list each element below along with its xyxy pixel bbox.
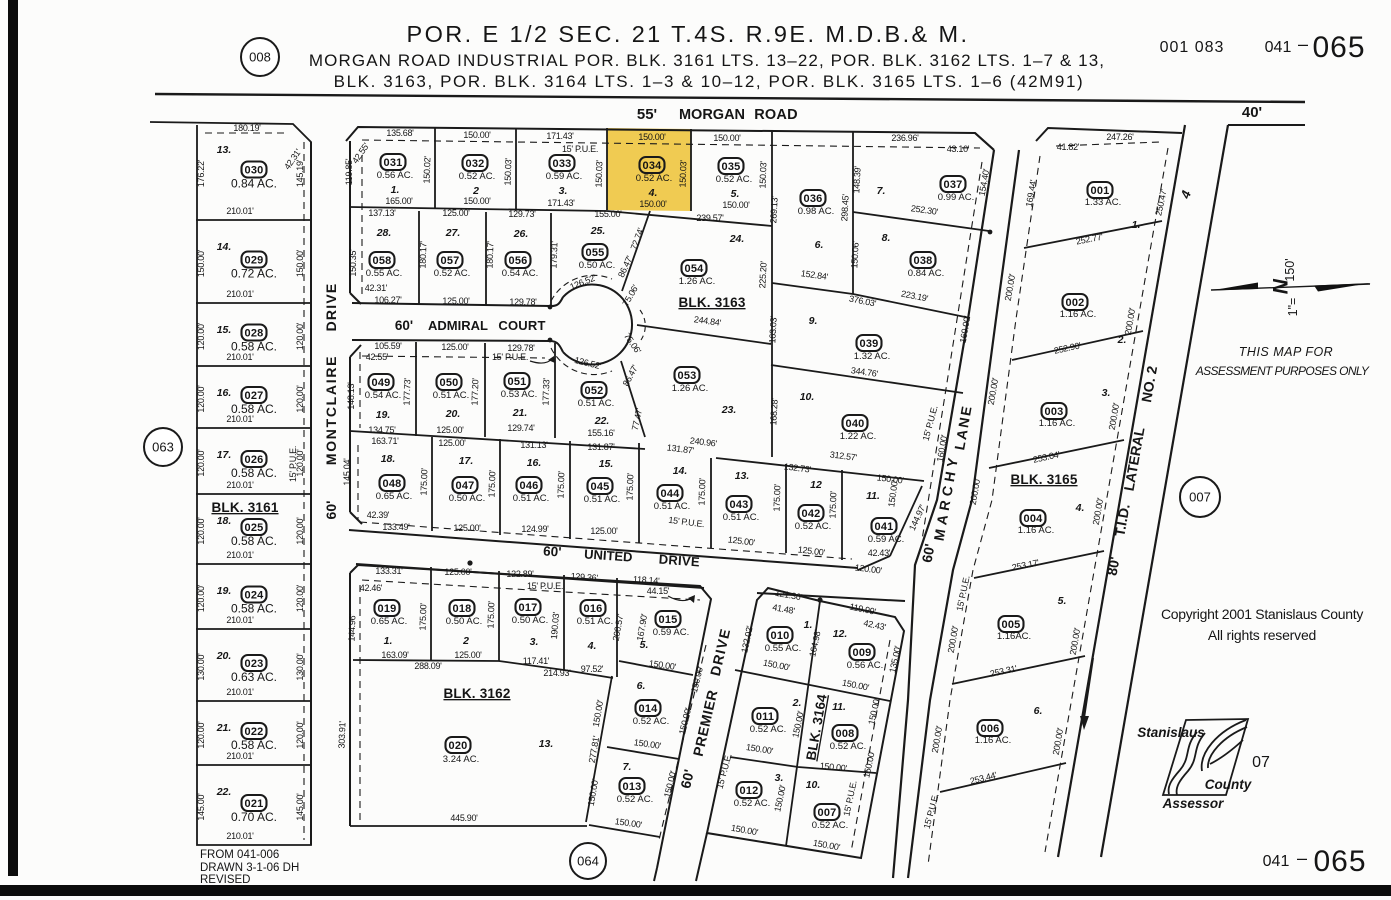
svg-text:145.00': 145.00' bbox=[295, 793, 305, 821]
svg-text:DRIVE: DRIVE bbox=[323, 283, 339, 332]
svg-text:27.: 27. bbox=[445, 227, 461, 239]
svg-text:045: 045 bbox=[591, 481, 610, 493]
svg-text:163.03': 163.03' bbox=[767, 315, 778, 343]
svg-text:3.: 3. bbox=[775, 772, 784, 784]
svg-text:7.: 7. bbox=[623, 761, 632, 773]
svg-text:COURT: COURT bbox=[498, 318, 545, 333]
svg-text:177.73': 177.73' bbox=[402, 378, 413, 406]
svg-text:REVISED: REVISED bbox=[200, 874, 251, 886]
svg-text:13.: 13. bbox=[539, 738, 554, 750]
svg-text:0.63 AC.: 0.63 AC. bbox=[231, 670, 277, 684]
svg-text:053: 053 bbox=[678, 370, 697, 382]
svg-text:25.: 25. bbox=[590, 225, 606, 237]
svg-text:0.55 AC.: 0.55 AC. bbox=[765, 643, 801, 654]
svg-text:048: 048 bbox=[383, 478, 402, 490]
svg-text:120.00': 120.00' bbox=[295, 322, 305, 350]
svg-text:BLK. 3163, POR. BLK. 3164 LTS.: BLK. 3163, POR. BLK. 3164 LTS. 1–3 & 10–… bbox=[334, 72, 1085, 91]
svg-text:14.: 14. bbox=[673, 465, 688, 477]
svg-text:038: 038 bbox=[914, 255, 933, 267]
svg-text:MORGAN ROAD INDUSTRIAL POR. BL: MORGAN ROAD INDUSTRIAL POR. BLK. 3161 LT… bbox=[309, 51, 1105, 70]
svg-text:0.52 AC.: 0.52 AC. bbox=[812, 820, 848, 831]
svg-text:0.51 AC.: 0.51 AC. bbox=[433, 390, 469, 401]
svg-text:0.98 AC.: 0.98 AC. bbox=[798, 206, 834, 217]
svg-text:MORGAN: MORGAN bbox=[679, 107, 745, 123]
svg-text:41.82': 41.82' bbox=[1057, 142, 1080, 152]
svg-text:0.56 AC.: 0.56 AC. bbox=[377, 170, 413, 181]
svg-text:176.22': 176.22' bbox=[196, 159, 206, 187]
svg-text:057: 057 bbox=[441, 255, 460, 267]
svg-text:0.52 AC.: 0.52 AC. bbox=[636, 173, 672, 184]
svg-text:118.14': 118.14' bbox=[633, 574, 661, 586]
svg-text:180.17': 180.17' bbox=[485, 241, 496, 269]
svg-text:016: 016 bbox=[584, 603, 603, 615]
svg-text:125.00': 125.00' bbox=[454, 650, 482, 660]
svg-text:009: 009 bbox=[853, 647, 872, 659]
svg-text:2.: 2. bbox=[792, 697, 802, 709]
svg-text:0.52 AC.: 0.52 AC. bbox=[734, 798, 770, 809]
svg-text:148.39': 148.39' bbox=[851, 165, 862, 193]
svg-text:20.: 20. bbox=[216, 650, 232, 662]
svg-text:0.72 AC.: 0.72 AC. bbox=[231, 267, 277, 281]
svg-text:FROM 041-006: FROM 041-006 bbox=[200, 849, 279, 861]
svg-text:029: 029 bbox=[245, 255, 264, 267]
svg-text:175.00': 175.00' bbox=[419, 468, 430, 496]
svg-text:42.31': 42.31' bbox=[365, 283, 388, 293]
svg-text:0.65 AC.: 0.65 AC. bbox=[371, 616, 407, 627]
svg-text:0.65 AC.: 0.65 AC. bbox=[376, 491, 412, 502]
svg-text:1.16 AC.: 1.16 AC. bbox=[1018, 525, 1054, 536]
svg-text:041: 041 bbox=[875, 521, 894, 533]
svg-text:3.: 3. bbox=[530, 636, 539, 648]
svg-text:039: 039 bbox=[860, 338, 879, 350]
svg-text:031: 031 bbox=[384, 157, 403, 169]
svg-text:137.13': 137.13' bbox=[368, 208, 396, 218]
svg-text:150.03': 150.03' bbox=[678, 160, 689, 188]
svg-text:150.00': 150.00' bbox=[722, 200, 750, 210]
svg-text:13.: 13. bbox=[217, 144, 232, 156]
svg-text:44.15': 44.15' bbox=[647, 586, 670, 596]
svg-text:6.: 6. bbox=[1034, 705, 1043, 717]
svg-text:0.51 AC.: 0.51 AC. bbox=[584, 494, 620, 505]
svg-text:010: 010 bbox=[771, 630, 790, 642]
svg-text:7.: 7. bbox=[877, 185, 886, 197]
svg-text:445.90': 445.90' bbox=[450, 813, 478, 823]
svg-text:42.46': 42.46' bbox=[360, 583, 383, 593]
svg-text:303.91': 303.91' bbox=[337, 721, 348, 749]
svg-text:0.50 AC.: 0.50 AC. bbox=[446, 616, 482, 627]
svg-text:120.00': 120.00' bbox=[196, 322, 206, 350]
svg-text:DRIVE: DRIVE bbox=[658, 552, 700, 570]
svg-text:105.59': 105.59' bbox=[374, 341, 402, 351]
svg-text:0.51 AC.: 0.51 AC. bbox=[513, 493, 549, 504]
svg-text:11.: 11. bbox=[866, 490, 880, 502]
svg-text:23.: 23. bbox=[721, 404, 737, 416]
svg-text:050: 050 bbox=[440, 377, 459, 389]
svg-text:Copyright 2001 Stanislaus Coun: Copyright 2001 Stanislaus County bbox=[1161, 606, 1363, 622]
svg-text:014: 014 bbox=[639, 703, 659, 715]
svg-text:239.57': 239.57' bbox=[696, 213, 724, 223]
svg-text:9.: 9. bbox=[809, 315, 818, 327]
svg-text:0.50 AC.: 0.50 AC. bbox=[579, 260, 615, 271]
svg-text:002: 002 bbox=[1066, 297, 1085, 309]
svg-text:168.28': 168.28' bbox=[768, 397, 779, 425]
svg-text:60': 60' bbox=[919, 542, 938, 563]
svg-text:225.20': 225.20' bbox=[757, 260, 768, 288]
svg-text:043: 043 bbox=[730, 499, 749, 511]
svg-text:035: 035 bbox=[722, 161, 741, 173]
svg-text:125.00': 125.00' bbox=[444, 567, 472, 577]
svg-text:236.96': 236.96' bbox=[891, 133, 919, 143]
svg-text:15.: 15. bbox=[599, 458, 614, 470]
svg-text:026: 026 bbox=[245, 454, 264, 466]
svg-text:0.58 AC.: 0.58 AC. bbox=[231, 602, 277, 616]
svg-text:20.: 20. bbox=[445, 408, 461, 420]
svg-text:80': 80' bbox=[1104, 555, 1123, 576]
svg-text:16.: 16. bbox=[217, 387, 232, 399]
svg-text:18.: 18. bbox=[217, 515, 232, 527]
svg-text:DRAWN 3-1-06 DH: DRAWN 3-1-06 DH bbox=[200, 862, 299, 874]
svg-text:17.: 17. bbox=[459, 455, 474, 467]
svg-text:150.03': 150.03' bbox=[758, 161, 769, 189]
svg-text:042: 042 bbox=[802, 508, 821, 520]
svg-text:054: 054 bbox=[685, 263, 705, 275]
svg-text:6.: 6. bbox=[815, 239, 824, 251]
svg-text:1.22 AC.: 1.22 AC. bbox=[840, 431, 876, 442]
svg-text:0.52 AC.: 0.52 AC. bbox=[633, 716, 669, 727]
svg-text:3.: 3. bbox=[559, 185, 568, 197]
svg-text:041: 041 bbox=[1263, 853, 1290, 870]
svg-text:056: 056 bbox=[509, 255, 528, 267]
svg-text:065: 065 bbox=[1312, 31, 1365, 64]
svg-text:019: 019 bbox=[378, 603, 397, 615]
svg-text:150.03': 150.03' bbox=[503, 158, 514, 186]
svg-text:005: 005 bbox=[1002, 619, 1021, 631]
svg-text:BLK. 3161: BLK. 3161 bbox=[211, 500, 278, 515]
svg-text:15' P.U.E.: 15' P.U.E. bbox=[527, 581, 563, 591]
svg-text:0.52 AC.: 0.52 AC. bbox=[459, 171, 495, 182]
svg-text:012: 012 bbox=[740, 785, 759, 797]
svg-text:42.43': 42.43' bbox=[868, 548, 891, 558]
svg-text:5.: 5. bbox=[1058, 595, 1067, 607]
svg-text:12.: 12. bbox=[833, 628, 848, 640]
svg-text:125.00': 125.00' bbox=[453, 523, 481, 533]
svg-text:210.01': 210.01' bbox=[226, 289, 254, 299]
svg-text:175.00': 175.00' bbox=[486, 601, 497, 629]
svg-text:150.35': 150.35' bbox=[348, 249, 358, 277]
svg-text:1.26 AC.: 1.26 AC. bbox=[672, 383, 708, 394]
svg-text:175.00': 175.00' bbox=[418, 603, 429, 631]
svg-text:Assessor: Assessor bbox=[1162, 796, 1225, 811]
svg-text:15' P.U.E.: 15' P.U.E. bbox=[288, 446, 298, 482]
svg-text:148.13': 148.13' bbox=[346, 382, 356, 410]
svg-text:145.00': 145.00' bbox=[196, 793, 206, 821]
svg-text:210.01': 210.01' bbox=[226, 414, 254, 424]
svg-text:8.: 8. bbox=[882, 232, 891, 244]
svg-text:058: 058 bbox=[373, 255, 392, 267]
svg-text:1.26 AC.: 1.26 AC. bbox=[679, 276, 715, 287]
svg-text:–: – bbox=[1298, 34, 1308, 54]
svg-text:150.00': 150.00' bbox=[196, 249, 206, 277]
svg-text:210.01': 210.01' bbox=[226, 751, 254, 761]
svg-text:179.31': 179.31' bbox=[549, 241, 560, 269]
svg-text:55': 55' bbox=[637, 106, 657, 123]
svg-text:0.55 AC.: 0.55 AC. bbox=[366, 268, 402, 279]
svg-text:180.17': 180.17' bbox=[418, 241, 429, 269]
svg-text:0.84 AC.: 0.84 AC. bbox=[231, 177, 277, 191]
svg-text:020: 020 bbox=[449, 740, 468, 752]
svg-text:120.00': 120.00' bbox=[196, 721, 206, 749]
svg-text:0.52 AC.: 0.52 AC. bbox=[795, 521, 831, 532]
svg-text:175.00': 175.00' bbox=[487, 470, 498, 498]
svg-text:22.: 22. bbox=[594, 415, 610, 427]
svg-text:210.01': 210.01' bbox=[226, 352, 254, 362]
svg-text:0.52 AC.: 0.52 AC. bbox=[617, 794, 653, 805]
svg-text:210.01': 210.01' bbox=[226, 687, 254, 697]
svg-text:120.00': 120.00' bbox=[295, 584, 305, 612]
svg-text:269.13': 269.13' bbox=[768, 195, 779, 223]
svg-text:024: 024 bbox=[245, 590, 265, 602]
svg-text:052: 052 bbox=[585, 385, 604, 397]
svg-text:15' P.U.E.: 15' P.U.E. bbox=[562, 144, 598, 154]
svg-text:1.16AC.: 1.16AC. bbox=[997, 631, 1031, 642]
svg-text:025: 025 bbox=[245, 522, 264, 534]
svg-text:0.51 AC.: 0.51 AC. bbox=[654, 501, 690, 512]
svg-text:150.00': 150.00' bbox=[638, 132, 666, 142]
svg-text:BLK. 3162: BLK. 3162 bbox=[443, 686, 510, 701]
svg-text:ADMIRAL: ADMIRAL bbox=[428, 318, 488, 333]
svg-text:150': 150' bbox=[1283, 258, 1297, 281]
svg-text:0.54 AC.: 0.54 AC. bbox=[502, 268, 538, 279]
svg-text:County: County bbox=[1205, 777, 1253, 792]
svg-text:10.: 10. bbox=[800, 391, 815, 403]
svg-text:027: 027 bbox=[245, 390, 264, 402]
svg-text:0.51 AC.: 0.51 AC. bbox=[577, 616, 613, 627]
svg-text:120.00': 120.00' bbox=[196, 385, 206, 413]
svg-text:125.00': 125.00' bbox=[441, 342, 469, 352]
svg-text:120.00': 120.00' bbox=[196, 517, 206, 545]
svg-text:0.58 AC.: 0.58 AC. bbox=[231, 738, 277, 752]
svg-text:3.: 3. bbox=[1102, 387, 1111, 399]
svg-text:210.01': 210.01' bbox=[226, 206, 254, 216]
svg-text:22.: 22. bbox=[216, 786, 232, 798]
svg-text:011: 011 bbox=[756, 711, 774, 723]
svg-text:028: 028 bbox=[245, 328, 264, 340]
svg-text:18.: 18. bbox=[381, 453, 396, 465]
svg-text:210.01': 210.01' bbox=[226, 831, 254, 841]
svg-text:063: 063 bbox=[152, 440, 174, 455]
svg-text:POR. E 1/2 SEC. 21 T.4S. R.9E.: POR. E 1/2 SEC. 21 T.4S. R.9E. M.D.B.& M… bbox=[407, 21, 970, 47]
svg-text:129.74': 129.74' bbox=[507, 423, 535, 433]
svg-text:5.: 5. bbox=[731, 188, 740, 200]
svg-text:24.: 24. bbox=[729, 233, 745, 245]
svg-text:Stanislaus: Stanislaus bbox=[1137, 725, 1205, 740]
svg-text:145.04': 145.04' bbox=[342, 458, 352, 486]
svg-text:007: 007 bbox=[818, 807, 837, 819]
svg-text:003: 003 bbox=[1045, 406, 1064, 418]
svg-text:047: 047 bbox=[456, 480, 475, 492]
svg-text:ASSESSMENT PURPOSES ONLY: ASSESSMENT PURPOSES ONLY bbox=[1195, 364, 1370, 378]
svg-text:210.01': 210.01' bbox=[226, 550, 254, 560]
svg-text:1.32 AC.: 1.32 AC. bbox=[854, 351, 890, 362]
svg-text:247.26': 247.26' bbox=[1106, 132, 1134, 142]
svg-text:19.: 19. bbox=[376, 409, 391, 421]
svg-text:051: 051 bbox=[508, 376, 527, 388]
svg-text:0.99 AC.: 0.99 AC. bbox=[938, 192, 974, 203]
svg-text:298.45': 298.45' bbox=[839, 193, 850, 221]
svg-text:3.24 AC.: 3.24 AC. bbox=[443, 754, 479, 765]
svg-text:0.52 AC.: 0.52 AC. bbox=[716, 174, 752, 185]
svg-text:0.58 AC.: 0.58 AC. bbox=[231, 534, 277, 548]
svg-text:015: 015 bbox=[659, 614, 678, 626]
svg-text:030: 030 bbox=[245, 165, 264, 177]
svg-text:001 083: 001 083 bbox=[1160, 39, 1225, 56]
svg-text:150.00': 150.00' bbox=[295, 249, 305, 277]
svg-text:144.96': 144.96' bbox=[347, 614, 358, 642]
svg-text:145.19': 145.19' bbox=[295, 159, 305, 187]
svg-text:210.01': 210.01' bbox=[226, 480, 254, 490]
svg-text:049: 049 bbox=[372, 377, 391, 389]
svg-text:130.00': 130.00' bbox=[196, 653, 206, 681]
svg-text:022: 022 bbox=[245, 726, 264, 738]
svg-text:–: – bbox=[1297, 848, 1307, 868]
svg-text:004: 004 bbox=[1024, 513, 1044, 525]
svg-text:007: 007 bbox=[1189, 490, 1211, 505]
svg-text:040: 040 bbox=[846, 418, 865, 430]
svg-text:0.52 AC.: 0.52 AC. bbox=[434, 268, 470, 279]
svg-text:129.73': 129.73' bbox=[508, 209, 536, 219]
svg-text:175.00': 175.00' bbox=[772, 484, 783, 512]
svg-text:150.02': 150.02' bbox=[422, 156, 433, 184]
svg-text:023: 023 bbox=[245, 658, 264, 670]
svg-text:60': 60' bbox=[543, 543, 562, 559]
svg-text:0.52 AC.: 0.52 AC. bbox=[750, 724, 786, 735]
svg-text:008: 008 bbox=[836, 728, 855, 740]
svg-text:14.: 14. bbox=[217, 241, 232, 253]
svg-text:16.: 16. bbox=[527, 457, 542, 469]
svg-text:150.00': 150.00' bbox=[713, 133, 741, 143]
svg-text:150.00': 150.00' bbox=[463, 196, 491, 206]
svg-text:0.59 AC.: 0.59 AC. bbox=[653, 627, 689, 638]
svg-text:21.: 21. bbox=[512, 407, 528, 419]
svg-text:26.: 26. bbox=[513, 228, 529, 240]
svg-text:4.: 4. bbox=[587, 640, 597, 652]
svg-text:210.01': 210.01' bbox=[226, 615, 254, 625]
svg-text:131.87': 131.87' bbox=[587, 442, 615, 452]
svg-text:15.: 15. bbox=[217, 324, 232, 336]
svg-text:037: 037 bbox=[944, 179, 963, 191]
svg-text:013: 013 bbox=[623, 781, 642, 793]
svg-text:021: 021 bbox=[245, 798, 264, 810]
svg-text:19.: 19. bbox=[217, 585, 232, 597]
svg-text:120.00': 120.00' bbox=[295, 517, 305, 545]
svg-text:4.: 4. bbox=[1075, 502, 1085, 514]
svg-text:155.16': 155.16' bbox=[587, 428, 615, 438]
svg-text:0.51 AC.: 0.51 AC. bbox=[578, 398, 614, 409]
svg-text:1.33 AC.: 1.33 AC. bbox=[1085, 197, 1121, 208]
svg-text:MONTCLAIRE: MONTCLAIRE bbox=[323, 355, 339, 465]
svg-text:0.54 AC.: 0.54 AC. bbox=[365, 390, 401, 401]
svg-text:177.33': 177.33' bbox=[541, 378, 552, 406]
svg-text:1.: 1. bbox=[804, 619, 813, 631]
svg-text:60': 60' bbox=[323, 501, 339, 520]
svg-text:124.99': 124.99' bbox=[521, 524, 549, 534]
svg-text:175.00': 175.00' bbox=[697, 478, 708, 506]
svg-text:046: 046 bbox=[520, 480, 539, 492]
svg-text:1"=: 1"= bbox=[1286, 298, 1300, 317]
svg-text:125.00': 125.00' bbox=[438, 438, 466, 448]
svg-text:130.00': 130.00' bbox=[295, 653, 305, 681]
svg-text:60': 60' bbox=[395, 318, 413, 333]
svg-text:150.03': 150.03' bbox=[594, 160, 605, 188]
svg-text:1.16 AC.: 1.16 AC. bbox=[975, 735, 1011, 746]
svg-text:034: 034 bbox=[643, 160, 663, 172]
svg-text:175.00': 175.00' bbox=[828, 491, 839, 519]
svg-text:150.00': 150.00' bbox=[463, 130, 491, 140]
svg-text:0.84 AC.: 0.84 AC. bbox=[908, 268, 944, 279]
svg-text:155.00': 155.00' bbox=[594, 209, 622, 219]
svg-text:17.: 17. bbox=[217, 449, 232, 461]
svg-text:175.00': 175.00' bbox=[625, 473, 636, 501]
svg-text:150.00': 150.00' bbox=[639, 199, 667, 209]
svg-text:033: 033 bbox=[553, 158, 572, 170]
svg-text:041: 041 bbox=[1265, 39, 1292, 56]
svg-text:120.00': 120.00' bbox=[295, 721, 305, 749]
svg-text:5.: 5. bbox=[640, 639, 649, 651]
svg-text:032: 032 bbox=[466, 158, 485, 170]
svg-text:28.: 28. bbox=[376, 227, 392, 239]
svg-text:07: 07 bbox=[1252, 754, 1270, 771]
svg-text:1.: 1. bbox=[391, 184, 400, 196]
svg-text:0.51 AC.: 0.51 AC. bbox=[723, 512, 759, 523]
svg-text:129.36': 129.36' bbox=[570, 571, 598, 583]
svg-text:42.55': 42.55' bbox=[366, 352, 389, 362]
svg-text:133.31': 133.31' bbox=[375, 566, 403, 576]
svg-text:21.: 21. bbox=[216, 722, 232, 734]
svg-text:008: 008 bbox=[249, 50, 271, 65]
svg-text:017: 017 bbox=[519, 602, 538, 614]
svg-text:150.06': 150.06' bbox=[849, 240, 860, 268]
svg-text:BLK. 3165: BLK. 3165 bbox=[1010, 472, 1077, 487]
svg-text:055: 055 bbox=[586, 247, 605, 259]
svg-text:13.: 13. bbox=[735, 470, 750, 482]
svg-text:0.58 AC.: 0.58 AC. bbox=[231, 466, 277, 480]
svg-text:1.16 AC.: 1.16 AC. bbox=[1060, 309, 1096, 320]
svg-text:1.16 AC.: 1.16 AC. bbox=[1039, 418, 1075, 429]
svg-text:288.09': 288.09' bbox=[414, 661, 442, 671]
svg-text:4.: 4. bbox=[648, 187, 658, 199]
svg-text:175.00': 175.00' bbox=[556, 471, 567, 499]
svg-text:001: 001 bbox=[1091, 185, 1110, 197]
svg-text:120.00': 120.00' bbox=[196, 449, 206, 477]
svg-text:12: 12 bbox=[810, 479, 822, 491]
svg-text:165.00': 165.00' bbox=[385, 196, 413, 206]
svg-text:163.71': 163.71' bbox=[371, 436, 399, 446]
svg-text:018: 018 bbox=[453, 603, 472, 615]
svg-text:10.: 10. bbox=[806, 779, 821, 791]
svg-text:125.00': 125.00' bbox=[436, 425, 464, 435]
svg-text:0.50 AC.: 0.50 AC. bbox=[512, 615, 548, 626]
svg-text:6.: 6. bbox=[637, 680, 646, 692]
svg-text:044: 044 bbox=[661, 488, 681, 500]
svg-text:42.39': 42.39' bbox=[367, 510, 390, 520]
svg-text:0.52 AC.: 0.52 AC. bbox=[830, 741, 866, 752]
svg-text:0.56 AC.: 0.56 AC. bbox=[847, 660, 883, 671]
svg-text:2: 2 bbox=[462, 635, 469, 647]
svg-text:0.50 AC.: 0.50 AC. bbox=[449, 493, 485, 504]
svg-text:171.43': 171.43' bbox=[547, 198, 575, 208]
svg-text:065: 065 bbox=[1313, 845, 1366, 878]
svg-text:064: 064 bbox=[577, 854, 599, 869]
